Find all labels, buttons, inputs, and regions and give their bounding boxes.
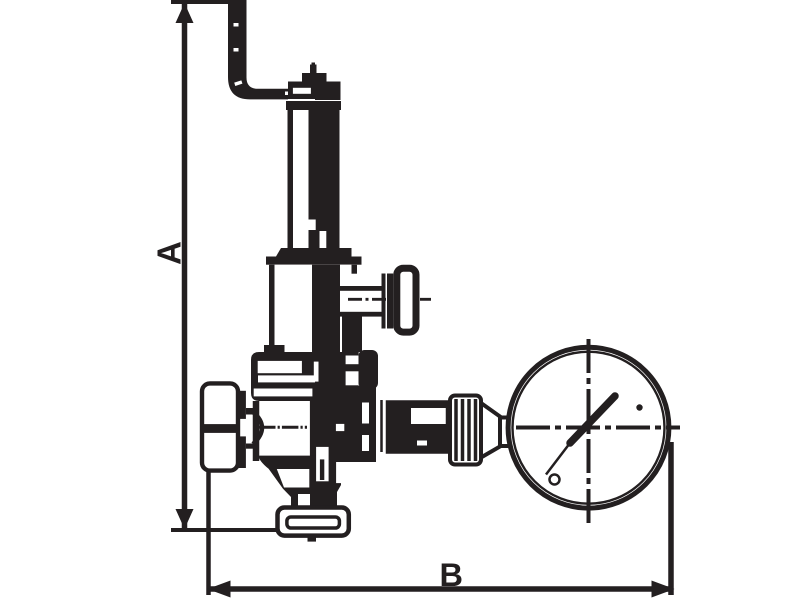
svg-text:B: B (440, 557, 463, 593)
svg-text:A: A (151, 241, 188, 265)
